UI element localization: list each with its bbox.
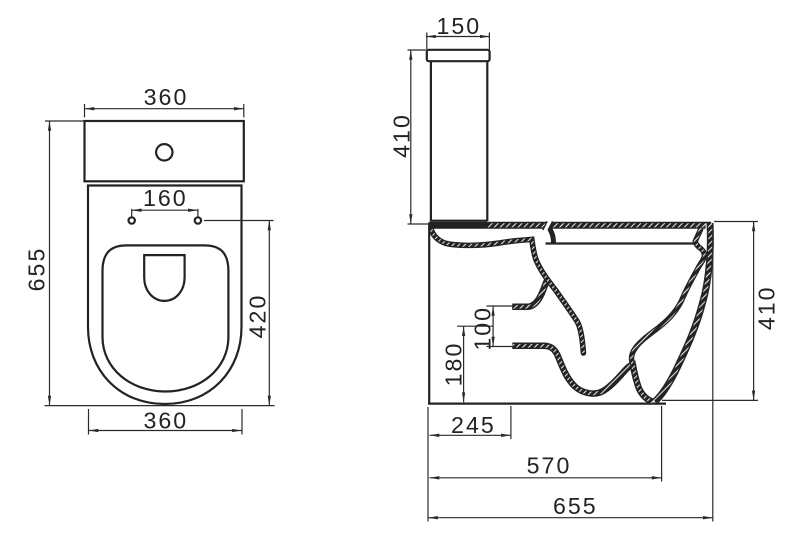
- svg-text:100: 100: [469, 306, 495, 351]
- svg-text:160: 160: [143, 185, 188, 211]
- svg-text:150: 150: [436, 13, 481, 39]
- svg-text:420: 420: [245, 294, 271, 339]
- svg-text:180: 180: [440, 342, 466, 387]
- svg-text:410: 410: [389, 113, 415, 158]
- svg-text:655: 655: [553, 493, 598, 519]
- svg-text:410: 410: [753, 285, 779, 330]
- svg-text:360: 360: [143, 408, 188, 434]
- svg-text:570: 570: [527, 453, 572, 479]
- svg-text:655: 655: [24, 247, 50, 292]
- svg-text:360: 360: [144, 84, 189, 110]
- svg-text:245: 245: [451, 412, 496, 438]
